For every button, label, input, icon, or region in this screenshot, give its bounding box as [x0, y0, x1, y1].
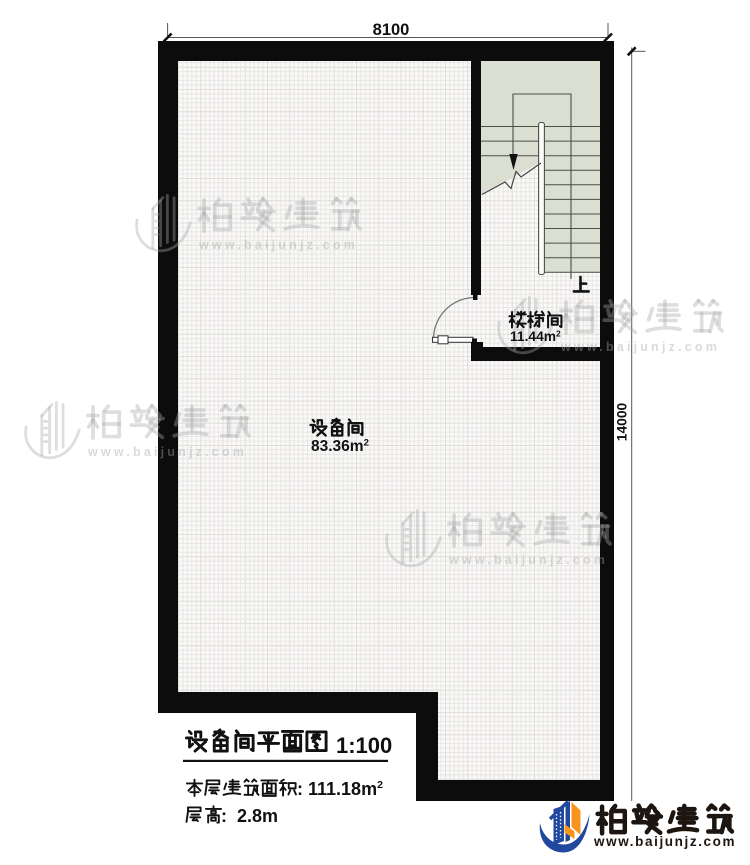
svg-text::: : [297, 779, 303, 799]
svg-text:83.36m2: 83.36m2 [311, 438, 369, 456]
svg-text:www.baijunjz.com: www.baijunjz.com [87, 445, 247, 459]
svg-text:www.baijunjz.com: www.baijunjz.com [560, 340, 720, 354]
svg-text:www.baijunjz.com: www.baijunjz.com [593, 834, 736, 849]
svg-text:www.baijunjz.com: www.baijunjz.com [448, 553, 608, 567]
svg-text::: : [221, 806, 227, 826]
svg-text:8100: 8100 [373, 21, 410, 39]
svg-text:2.8m: 2.8m [237, 806, 278, 826]
svg-text:11.44m2: 11.44m2 [510, 329, 561, 345]
svg-text:1:100: 1:100 [336, 733, 392, 758]
svg-text:111.18m2: 111.18m2 [308, 779, 383, 799]
svg-text:www.baijunjz.com: www.baijunjz.com [198, 238, 358, 252]
svg-text:14000: 14000 [615, 402, 630, 441]
